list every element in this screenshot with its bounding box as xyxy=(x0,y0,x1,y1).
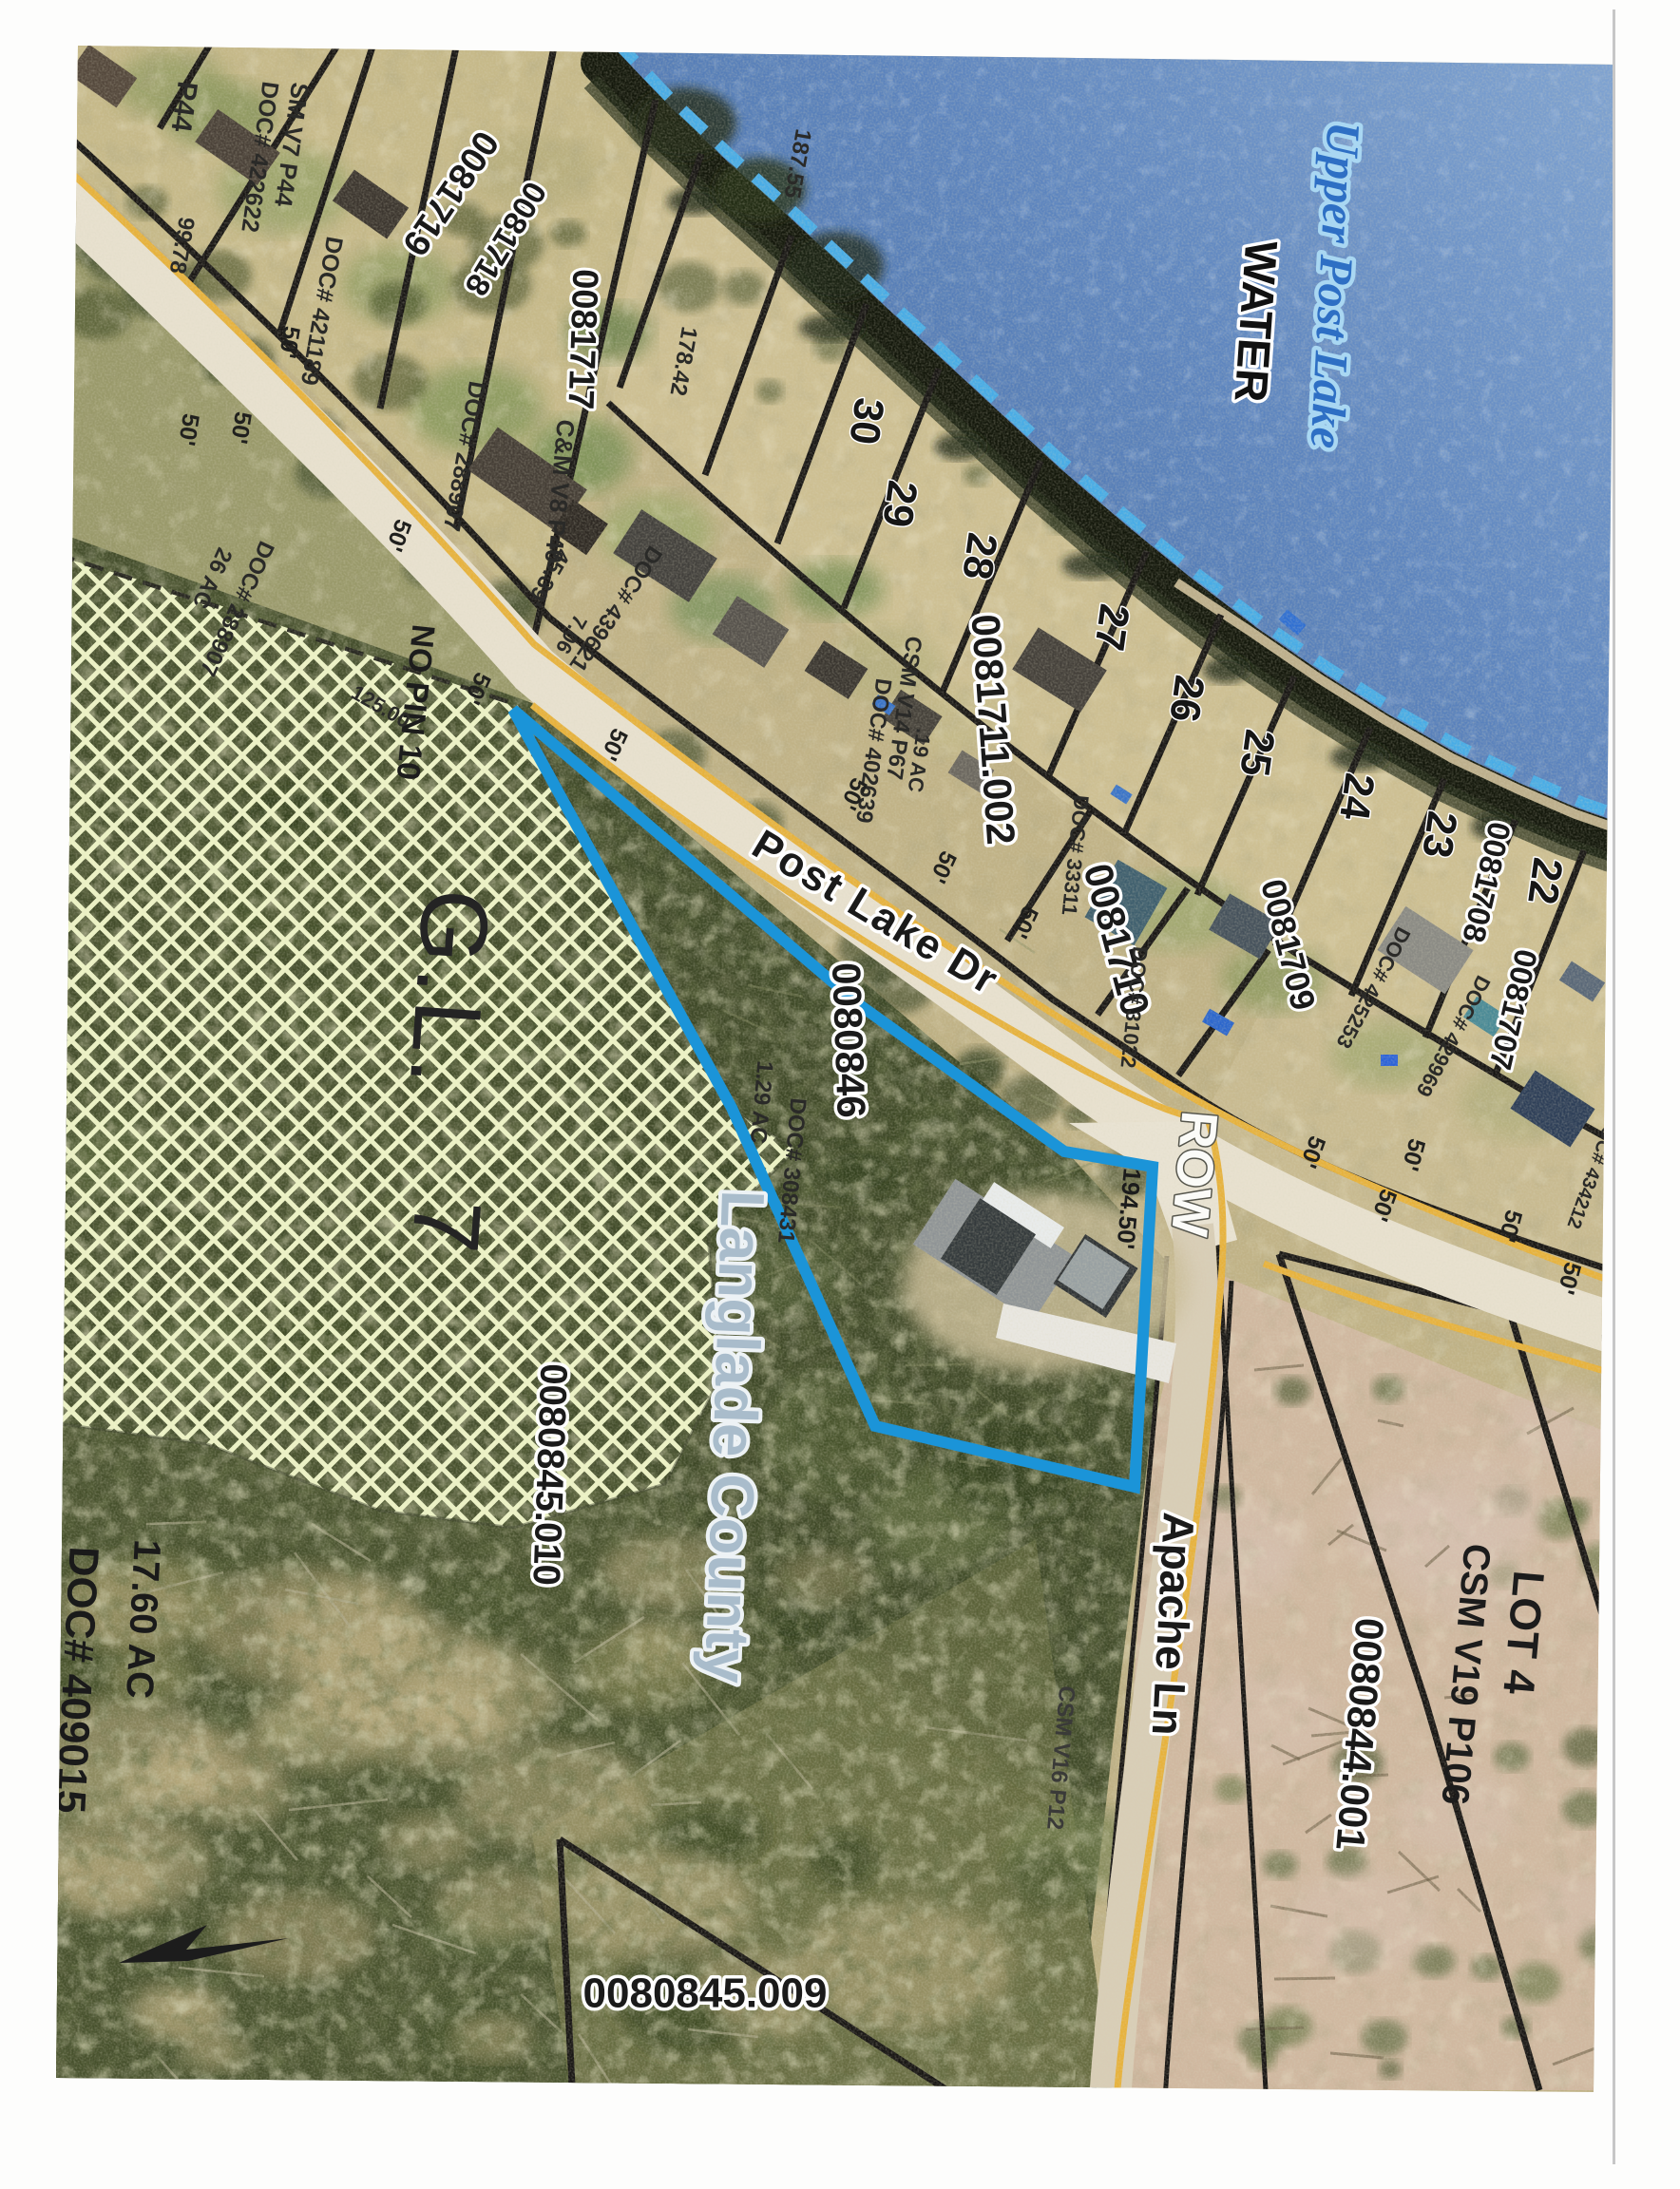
svg-text:30: 30 xyxy=(840,395,892,447)
svg-text:7: 7 xyxy=(391,1196,502,1256)
svg-text:17.60 AC: 17.60 AC xyxy=(118,1538,168,1700)
svg-text:26: 26 xyxy=(1160,673,1212,725)
svg-text:ROW: ROW xyxy=(1160,1109,1228,1239)
svg-text:G.L.: G.L. xyxy=(389,885,509,1094)
svg-text:23: 23 xyxy=(1413,809,1465,861)
svg-text:29: 29 xyxy=(873,478,926,530)
svg-text:0080845.010: 0080845.010 xyxy=(525,1363,574,1587)
svg-text:0081717: 0081717 xyxy=(560,268,604,409)
svg-text:24: 24 xyxy=(1330,771,1383,824)
svg-text:25: 25 xyxy=(1231,727,1283,779)
svg-text:50': 50' xyxy=(225,409,257,446)
svg-text:27: 27 xyxy=(1085,601,1137,654)
svg-text:50': 50' xyxy=(173,411,204,447)
svg-text:22: 22 xyxy=(1518,855,1571,907)
svg-text:28: 28 xyxy=(953,530,1005,582)
svg-text:50': 50' xyxy=(274,324,305,360)
svg-text:0080845.009: 0080845.009 xyxy=(583,1970,828,2017)
svg-text:0080846: 0080846 xyxy=(824,961,874,1118)
